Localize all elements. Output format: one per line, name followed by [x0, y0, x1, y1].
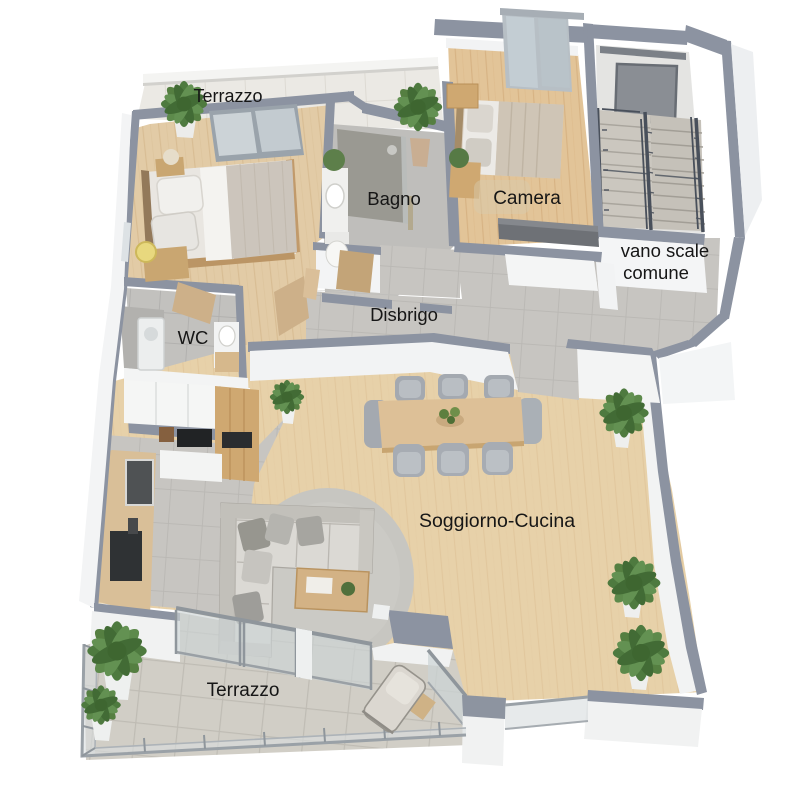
svg-text:Camera: Camera — [493, 188, 561, 209]
svg-text:Disbrigo: Disbrigo — [370, 304, 438, 325]
svg-text:Soggiorno-Cucina: Soggiorno-Cucina — [419, 510, 575, 532]
svg-text:comune: comune — [623, 262, 689, 283]
svg-text:Terrazzo: Terrazzo — [207, 680, 280, 701]
svg-text:vano scale: vano scale — [621, 240, 709, 261]
svg-text:Terrazzo: Terrazzo — [193, 86, 262, 106]
svg-text:Bagno: Bagno — [367, 188, 421, 209]
svg-text:WC: WC — [178, 327, 209, 348]
